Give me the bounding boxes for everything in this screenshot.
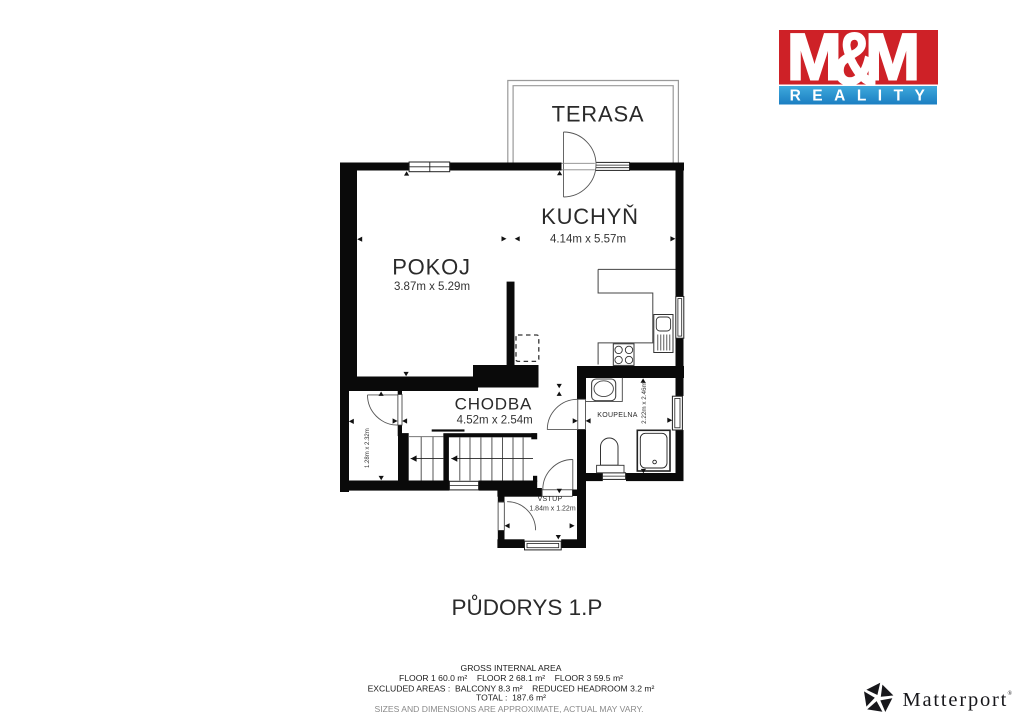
svg-text:REALITY: REALITY — [790, 88, 937, 105]
svg-text:1.28m x 2.32m: 1.28m x 2.32m — [365, 428, 371, 468]
svg-text:®: ® — [1008, 690, 1013, 697]
svg-text:FLOOR 1 60.0 m² FLOOR 2 68.: FLOOR 1 60.0 m² FLOOR 2 68.1 m² FLOOR 3 … — [399, 673, 623, 683]
svg-text:3.87m x 5.29m: 3.87m x 5.29m — [394, 281, 470, 293]
svg-text:POKOJ: POKOJ — [392, 255, 471, 280]
svg-text:PŮDORYS 1.P: PŮDORYS 1.P — [452, 595, 603, 620]
svg-text:4.52m x 2.54m: 4.52m x 2.54m — [457, 415, 533, 427]
svg-text:2.22m x 2.46m: 2.22m x 2.46m — [641, 382, 648, 424]
svg-text:KOUPELNA: KOUPELNA — [597, 412, 638, 419]
svg-text:GROSS INTERNAL AREA: GROSS INTERNAL AREA — [461, 663, 562, 673]
svg-text:KUCHYŇ: KUCHYŇ — [541, 204, 639, 229]
svg-text:TOTAL : 187.6 m²: TOTAL : 187.6 m² — [476, 693, 546, 703]
svg-text:TERASA: TERASA — [552, 102, 645, 127]
svg-text:VSTUP: VSTUP — [538, 496, 563, 503]
svg-text:1.84m x 1.22m: 1.84m x 1.22m — [529, 505, 575, 512]
svg-text:CHODBA: CHODBA — [455, 395, 533, 414]
svg-text:SIZES AND DIMENSIONS ARE APPRO: SIZES AND DIMENSIONS ARE APPROXIMATE, AC… — [374, 704, 643, 714]
svg-text:Matterport: Matterport — [903, 689, 1009, 711]
svg-text:4.14m x 5.57m: 4.14m x 5.57m — [550, 234, 626, 246]
